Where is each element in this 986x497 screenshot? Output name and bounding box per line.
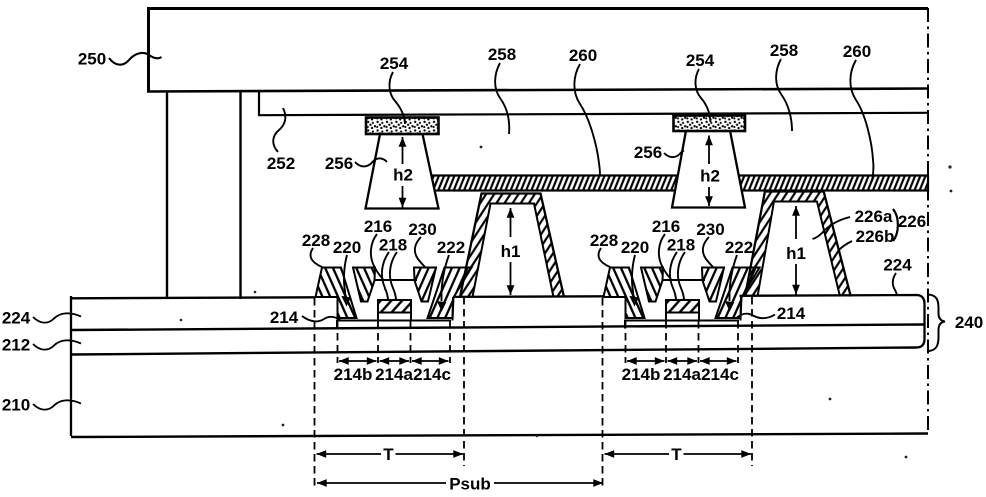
svg-text:256: 256 <box>634 143 662 162</box>
svg-text:240: 240 <box>955 313 983 332</box>
svg-text:214: 214 <box>777 304 806 323</box>
svg-text:T: T <box>383 445 394 464</box>
svg-text:h1: h1 <box>786 244 806 263</box>
svg-text:254: 254 <box>686 51 715 70</box>
svg-text:250: 250 <box>78 50 106 69</box>
svg-text:252: 252 <box>267 154 295 173</box>
svg-text:258: 258 <box>770 41 798 60</box>
svg-text:218: 218 <box>379 236 407 255</box>
svg-text:254: 254 <box>380 54 409 73</box>
svg-text:220: 220 <box>333 238 361 257</box>
svg-text:Psub: Psub <box>449 475 491 494</box>
svg-text:260: 260 <box>843 42 871 61</box>
svg-text:h2: h2 <box>393 166 413 185</box>
svg-text:226a: 226a <box>855 207 893 226</box>
svg-text:260: 260 <box>569 46 597 65</box>
svg-text:224: 224 <box>883 256 912 275</box>
svg-text:214a: 214a <box>375 365 413 384</box>
svg-text:228: 228 <box>302 231 330 250</box>
svg-text:214c: 214c <box>413 365 451 384</box>
svg-text:256: 256 <box>325 154 353 173</box>
svg-text:222: 222 <box>437 238 465 257</box>
svg-text:224: 224 <box>2 309 31 328</box>
svg-text:230: 230 <box>408 220 436 239</box>
svg-text:210: 210 <box>2 396 30 415</box>
svg-text:258: 258 <box>488 45 516 64</box>
svg-text:212: 212 <box>2 336 30 355</box>
svg-text:226: 226 <box>898 212 926 231</box>
svg-text:216: 216 <box>364 217 392 236</box>
svg-text:226b: 226b <box>856 227 895 246</box>
svg-text:h2: h2 <box>700 167 720 186</box>
svg-text:h1: h1 <box>501 242 521 261</box>
svg-text:214: 214 <box>270 308 299 327</box>
svg-text:214b: 214b <box>334 365 373 384</box>
